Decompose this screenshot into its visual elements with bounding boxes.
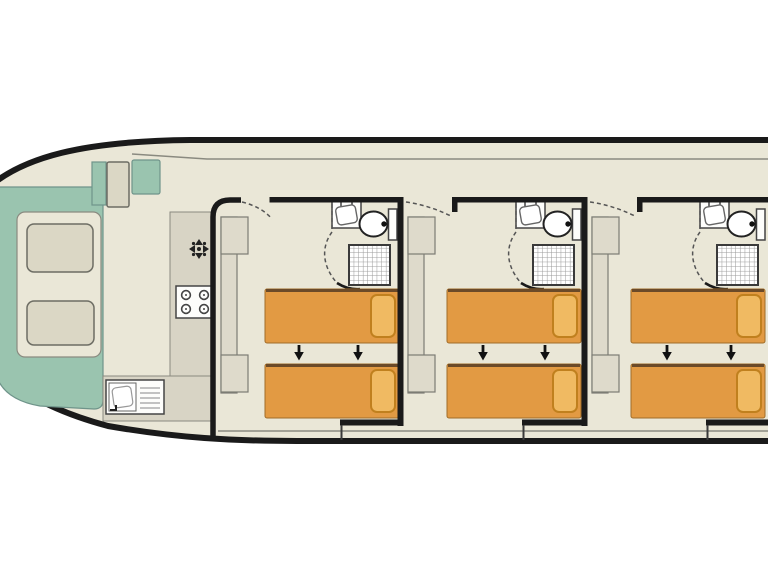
pillow	[737, 295, 761, 337]
shower-icon	[717, 245, 758, 285]
bow-deck-arm	[92, 162, 106, 205]
cabin-3-bottom-wall	[706, 420, 768, 426]
cabin-2-door-jamb	[452, 197, 458, 212]
cabin-2-top-wall	[452, 197, 588, 203]
helm-seat	[107, 162, 129, 207]
deck-plan	[0, 0, 768, 576]
bow-seat-cushion-top	[27, 224, 93, 272]
cabin-1-top-wall	[270, 197, 404, 203]
pillow	[737, 370, 761, 412]
cabin-3-door-jamb	[637, 197, 643, 212]
pillow	[553, 295, 577, 337]
cabin-3-top-wall	[637, 197, 768, 203]
shower-icon	[533, 245, 574, 285]
bow-seat-cushion-bottom	[27, 301, 94, 345]
pillow	[371, 370, 395, 412]
galley-sink-icon	[106, 380, 164, 414]
cabin-1-2-wall	[398, 197, 404, 426]
pillow	[553, 370, 577, 412]
pillow	[371, 295, 395, 337]
cabin-1-bottom-wall	[340, 420, 404, 426]
stove-icon	[176, 286, 214, 318]
cabin-2-3-wall	[582, 197, 588, 426]
deck-plan-canvas	[0, 0, 768, 576]
shower-icon	[349, 245, 390, 285]
companionway-step	[132, 160, 160, 194]
cabin-2-bottom-wall	[522, 420, 588, 426]
